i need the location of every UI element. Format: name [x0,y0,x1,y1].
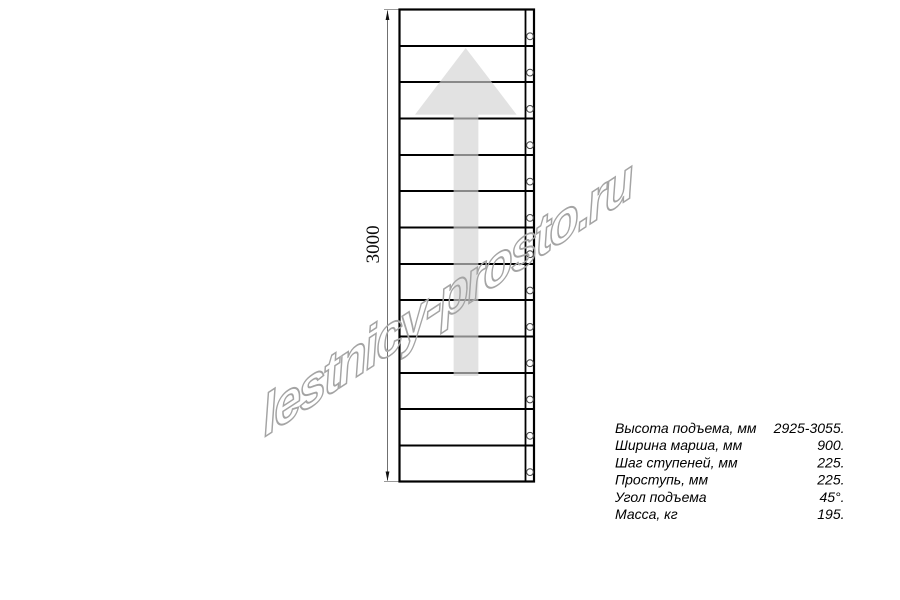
svg-text:Проступь, мм: Проступь, мм [615,472,709,488]
svg-text:Высота подъема, мм: Высота подъема, мм [615,420,757,436]
svg-text:3000: 3000 [363,225,384,263]
svg-text:Ширина марша, мм: Ширина марша, мм [615,437,743,453]
svg-text:225.: 225. [816,454,844,470]
svg-text:Угол подъема: Угол подъема [614,489,707,505]
svg-text:225.: 225. [816,472,844,488]
svg-text:195.: 195. [817,506,844,522]
svg-text:2925-3055.: 2925-3055. [773,420,845,436]
svg-text:900.: 900. [817,437,844,453]
svg-text:Масса, кг: Масса, кг [615,506,678,522]
svg-text:Шаг ступеней, мм: Шаг ступеней, мм [615,454,738,470]
svg-text:45°.: 45°. [819,489,844,505]
